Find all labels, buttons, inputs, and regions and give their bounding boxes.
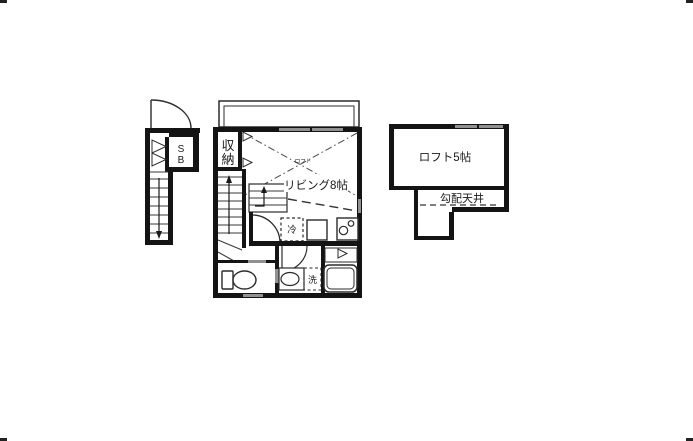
loft-above-note: ロフト bbox=[295, 158, 312, 165]
living-room: リビング8帖 bbox=[284, 175, 348, 192]
closet-door-icon bbox=[243, 132, 252, 141]
loft-windows bbox=[455, 125, 503, 128]
fridge-label: 冷 bbox=[287, 224, 297, 236]
kitchen-door-arc bbox=[252, 215, 280, 243]
sink bbox=[307, 220, 327, 240]
closet-label-1: 収 bbox=[221, 138, 234, 153]
internal-staircase bbox=[218, 169, 246, 261]
floor-plan-page: S B bbox=[0, 0, 693, 441]
shoebox-label: S B bbox=[178, 144, 185, 166]
stove bbox=[337, 218, 358, 240]
toilet bbox=[222, 271, 256, 289]
stair-down-arrow bbox=[156, 178, 162, 239]
entrance-door-arc bbox=[151, 100, 191, 128]
shoebox-label-s: S bbox=[178, 144, 185, 155]
vanity bbox=[279, 268, 304, 290]
loft: ロフト5帖 勾配天井 bbox=[389, 124, 509, 240]
closet-door-icon bbox=[243, 158, 252, 167]
exterior-staircase: S B bbox=[145, 100, 200, 245]
sloped-ceiling-label: 勾配天井 bbox=[440, 191, 484, 205]
bath-door-icon bbox=[338, 249, 347, 258]
balcony bbox=[219, 101, 359, 127]
washroom-door-arc bbox=[282, 246, 307, 271]
shoebox-label-b: B bbox=[178, 155, 185, 166]
toilet-room bbox=[218, 246, 279, 293]
washroom: 洗 bbox=[279, 246, 321, 290]
upper-stair-flight bbox=[249, 184, 287, 212]
bifold-door-icon bbox=[152, 140, 166, 166]
washer-label: 洗 bbox=[308, 274, 317, 285]
loft-label: ロフト5帖 bbox=[419, 150, 471, 164]
main-unit: ロフト 収 納 bbox=[213, 127, 362, 298]
sloped-ceiling-dash-living bbox=[288, 199, 357, 211]
closet: 収 納 bbox=[218, 132, 252, 171]
bathroom bbox=[321, 246, 357, 293]
floor-plan-drawing: S B bbox=[0, 0, 693, 441]
bathtub bbox=[324, 265, 357, 292]
living-label: リビング8帖 bbox=[284, 178, 348, 192]
kitchen: 冷 bbox=[249, 212, 362, 246]
closet-label-2: 納 bbox=[221, 152, 234, 167]
